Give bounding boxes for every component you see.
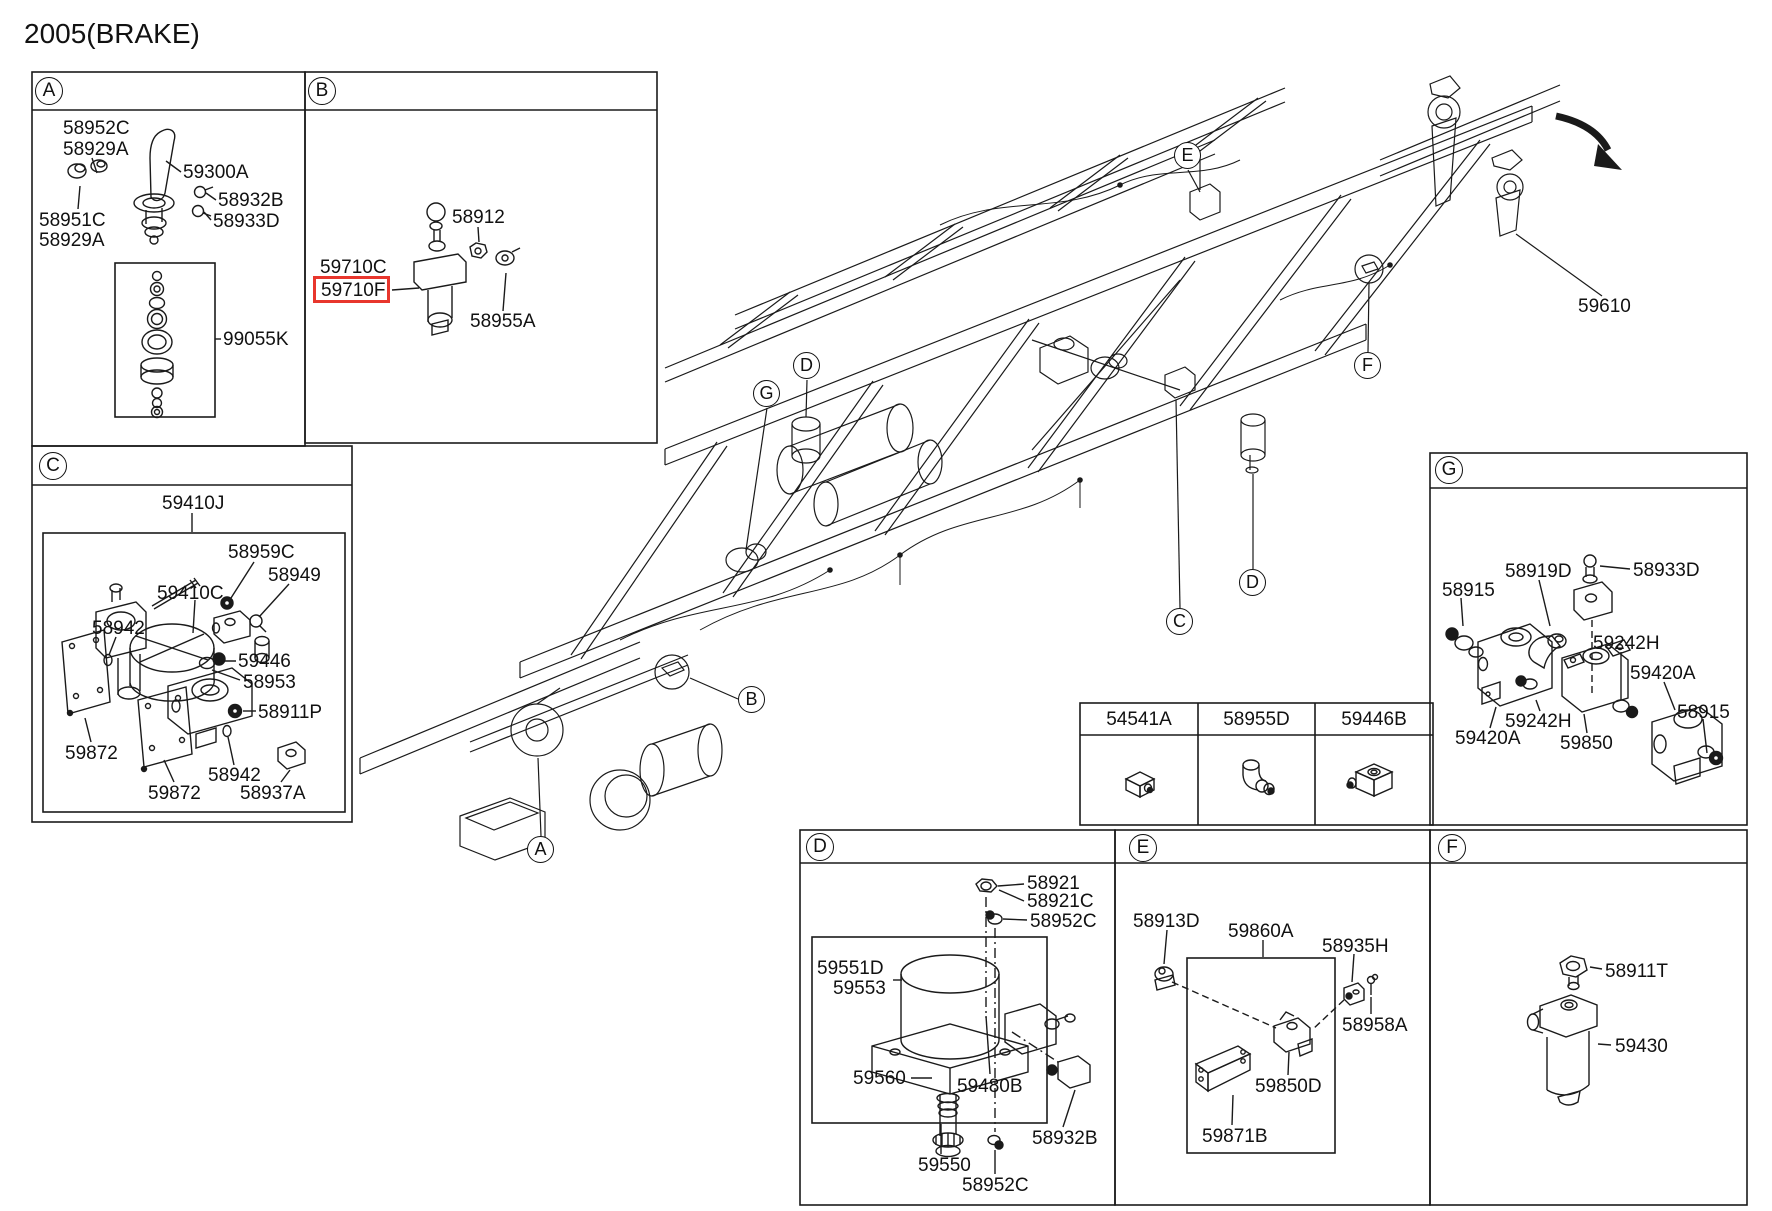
- part-label-58933d[interactable]: 58933D: [213, 211, 280, 232]
- fitting-icon-54541a: [1126, 772, 1154, 797]
- part-label-59560[interactable]: 59560: [853, 1068, 906, 1089]
- page-title: 2005(BRAKE): [24, 18, 200, 50]
- part-label-58933d-2[interactable]: 58933D: [1633, 560, 1700, 581]
- parts-diagram-canvas: 2005(BRAKE) A B C G D E F A B C D D E F …: [0, 0, 1772, 1211]
- section-f-letter: F: [1438, 834, 1466, 862]
- part-label-58915-2[interactable]: 58915: [1677, 702, 1730, 723]
- part-label-58911p[interactable]: 58911P: [258, 702, 322, 723]
- part-label-59850[interactable]: 59850: [1560, 733, 1613, 754]
- part-label-59446[interactable]: 59446: [238, 651, 291, 672]
- filter-valve-art: [1528, 956, 1612, 1105]
- part-label-58952c[interactable]: 58952C: [63, 118, 130, 139]
- table-column-59446b[interactable]: 59446B: [1315, 709, 1433, 730]
- section-a-letter: A: [35, 77, 63, 105]
- part-label-58919d[interactable]: 58919D: [1505, 561, 1572, 582]
- part-label-58935h[interactable]: 58935H: [1322, 936, 1389, 957]
- section-b-letter: B: [308, 77, 336, 105]
- part-label-58929a[interactable]: 58929A: [63, 139, 129, 160]
- part-label-58921c[interactable]: 58921C: [1027, 891, 1094, 912]
- part-label-58955a[interactable]: 58955A: [470, 311, 536, 332]
- part-label-59860a[interactable]: 59860A: [1228, 921, 1294, 942]
- repair-kit-stack-art: [141, 272, 173, 418]
- section-e-letter: E: [1129, 834, 1157, 862]
- table-column-54541a[interactable]: 54541A: [1080, 709, 1198, 730]
- part-label-58951c[interactable]: 58951C: [39, 210, 106, 231]
- part-label-59550[interactable]: 59550: [918, 1155, 971, 1176]
- part-label-59410j[interactable]: 59410J: [162, 493, 224, 514]
- part-label-58913d[interactable]: 58913D: [1133, 911, 1200, 932]
- chassis-frame-art: [360, 85, 1560, 774]
- chassis-callout-c: C: [1166, 608, 1193, 635]
- part-label-58953[interactable]: 58953: [243, 672, 296, 693]
- part-label-59710f[interactable]: 59710F: [321, 280, 385, 301]
- part-label-59420a[interactable]: 59420A: [1630, 663, 1696, 684]
- part-label-59710c[interactable]: 59710C: [320, 257, 387, 278]
- part-label-59551d[interactable]: 59551D: [817, 958, 884, 979]
- section-d-letter: D: [806, 833, 834, 861]
- chassis-callout-a: A: [527, 836, 554, 863]
- part-label-58932b[interactable]: 58932B: [218, 190, 284, 211]
- part-label-58932b-2[interactable]: 58932B: [1032, 1128, 1098, 1149]
- part-label-59300a[interactable]: 59300A: [183, 162, 249, 183]
- chassis-callout-d-left: D: [793, 352, 820, 379]
- section-c-letter: C: [39, 452, 67, 480]
- part-label-58911t[interactable]: 58911T: [1605, 961, 1668, 982]
- part-label-58959c[interactable]: 58959C: [228, 542, 295, 563]
- part-label-59430[interactable]: 59430: [1615, 1036, 1668, 1057]
- part-label-99055k[interactable]: 99055K: [223, 329, 289, 350]
- part-label-58937a[interactable]: 58937A: [240, 783, 306, 804]
- part-label-59872-2[interactable]: 59872: [148, 783, 201, 804]
- part-label-59872[interactable]: 59872: [65, 743, 118, 764]
- part-label-59850d[interactable]: 59850D: [1255, 1076, 1322, 1097]
- section-g-letter: G: [1435, 456, 1463, 484]
- fitting-icon-58955d: [1243, 760, 1274, 795]
- part-label-59871b[interactable]: 59871B: [1202, 1126, 1268, 1147]
- table-column-58955d[interactable]: 58955D: [1198, 709, 1315, 730]
- part-label-58912[interactable]: 58912: [452, 207, 505, 228]
- part-label-58958a[interactable]: 58958A: [1342, 1015, 1408, 1036]
- chassis-callout-e: E: [1174, 142, 1201, 169]
- part-label-59242h[interactable]: 59242H: [1593, 633, 1660, 654]
- chassis-callout-g: G: [753, 380, 780, 407]
- part-label-59420a-2[interactable]: 59420A: [1455, 728, 1521, 749]
- part-label-59480b[interactable]: 59480B: [957, 1076, 1023, 1097]
- part-label-58929a-2[interactable]: 58929A: [39, 230, 105, 251]
- part-label-58949[interactable]: 58949: [268, 565, 321, 586]
- chassis-callout-d-right: D: [1239, 569, 1266, 596]
- part-label-59553[interactable]: 59553: [833, 978, 886, 999]
- part-label-58915[interactable]: 58915: [1442, 580, 1495, 601]
- chassis-callout-f: F: [1354, 352, 1381, 379]
- diagram-line-art: [0, 0, 1772, 1211]
- part-label-58942[interactable]: 58942: [92, 618, 145, 639]
- chassis-callout-b: B: [738, 686, 765, 713]
- part-label-58952c-2[interactable]: 58952C: [1030, 911, 1097, 932]
- fitting-icon-59446b: [1347, 764, 1392, 796]
- part-label-58952c-3[interactable]: 58952C: [962, 1175, 1029, 1196]
- part-label-59410c[interactable]: 59410C: [157, 583, 224, 604]
- part-label-59610[interactable]: 59610: [1578, 296, 1631, 317]
